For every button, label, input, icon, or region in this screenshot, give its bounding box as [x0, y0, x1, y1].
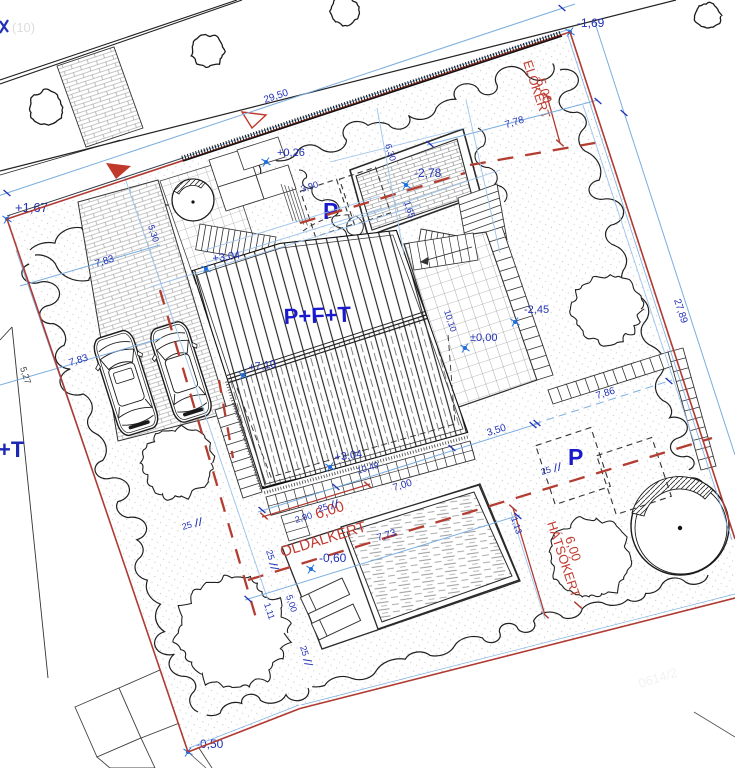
svg-text:-2,45: -2,45 — [524, 304, 549, 316]
svg-text:-1,69: -1,69 — [577, 16, 605, 30]
svg-text:-2,78: -2,78 — [414, 166, 442, 180]
svg-text:P+F+T: P+F+T — [283, 302, 352, 329]
svg-text:+0,26: +0,26 — [277, 147, 305, 159]
svg-text:+T: +T — [0, 437, 25, 462]
svg-text:P: P — [568, 444, 583, 470]
svg-text:(10): (10) — [12, 20, 35, 35]
svg-text:±0,00: ±0,00 — [470, 332, 497, 344]
svg-text:-0,60: -0,60 — [319, 551, 347, 565]
